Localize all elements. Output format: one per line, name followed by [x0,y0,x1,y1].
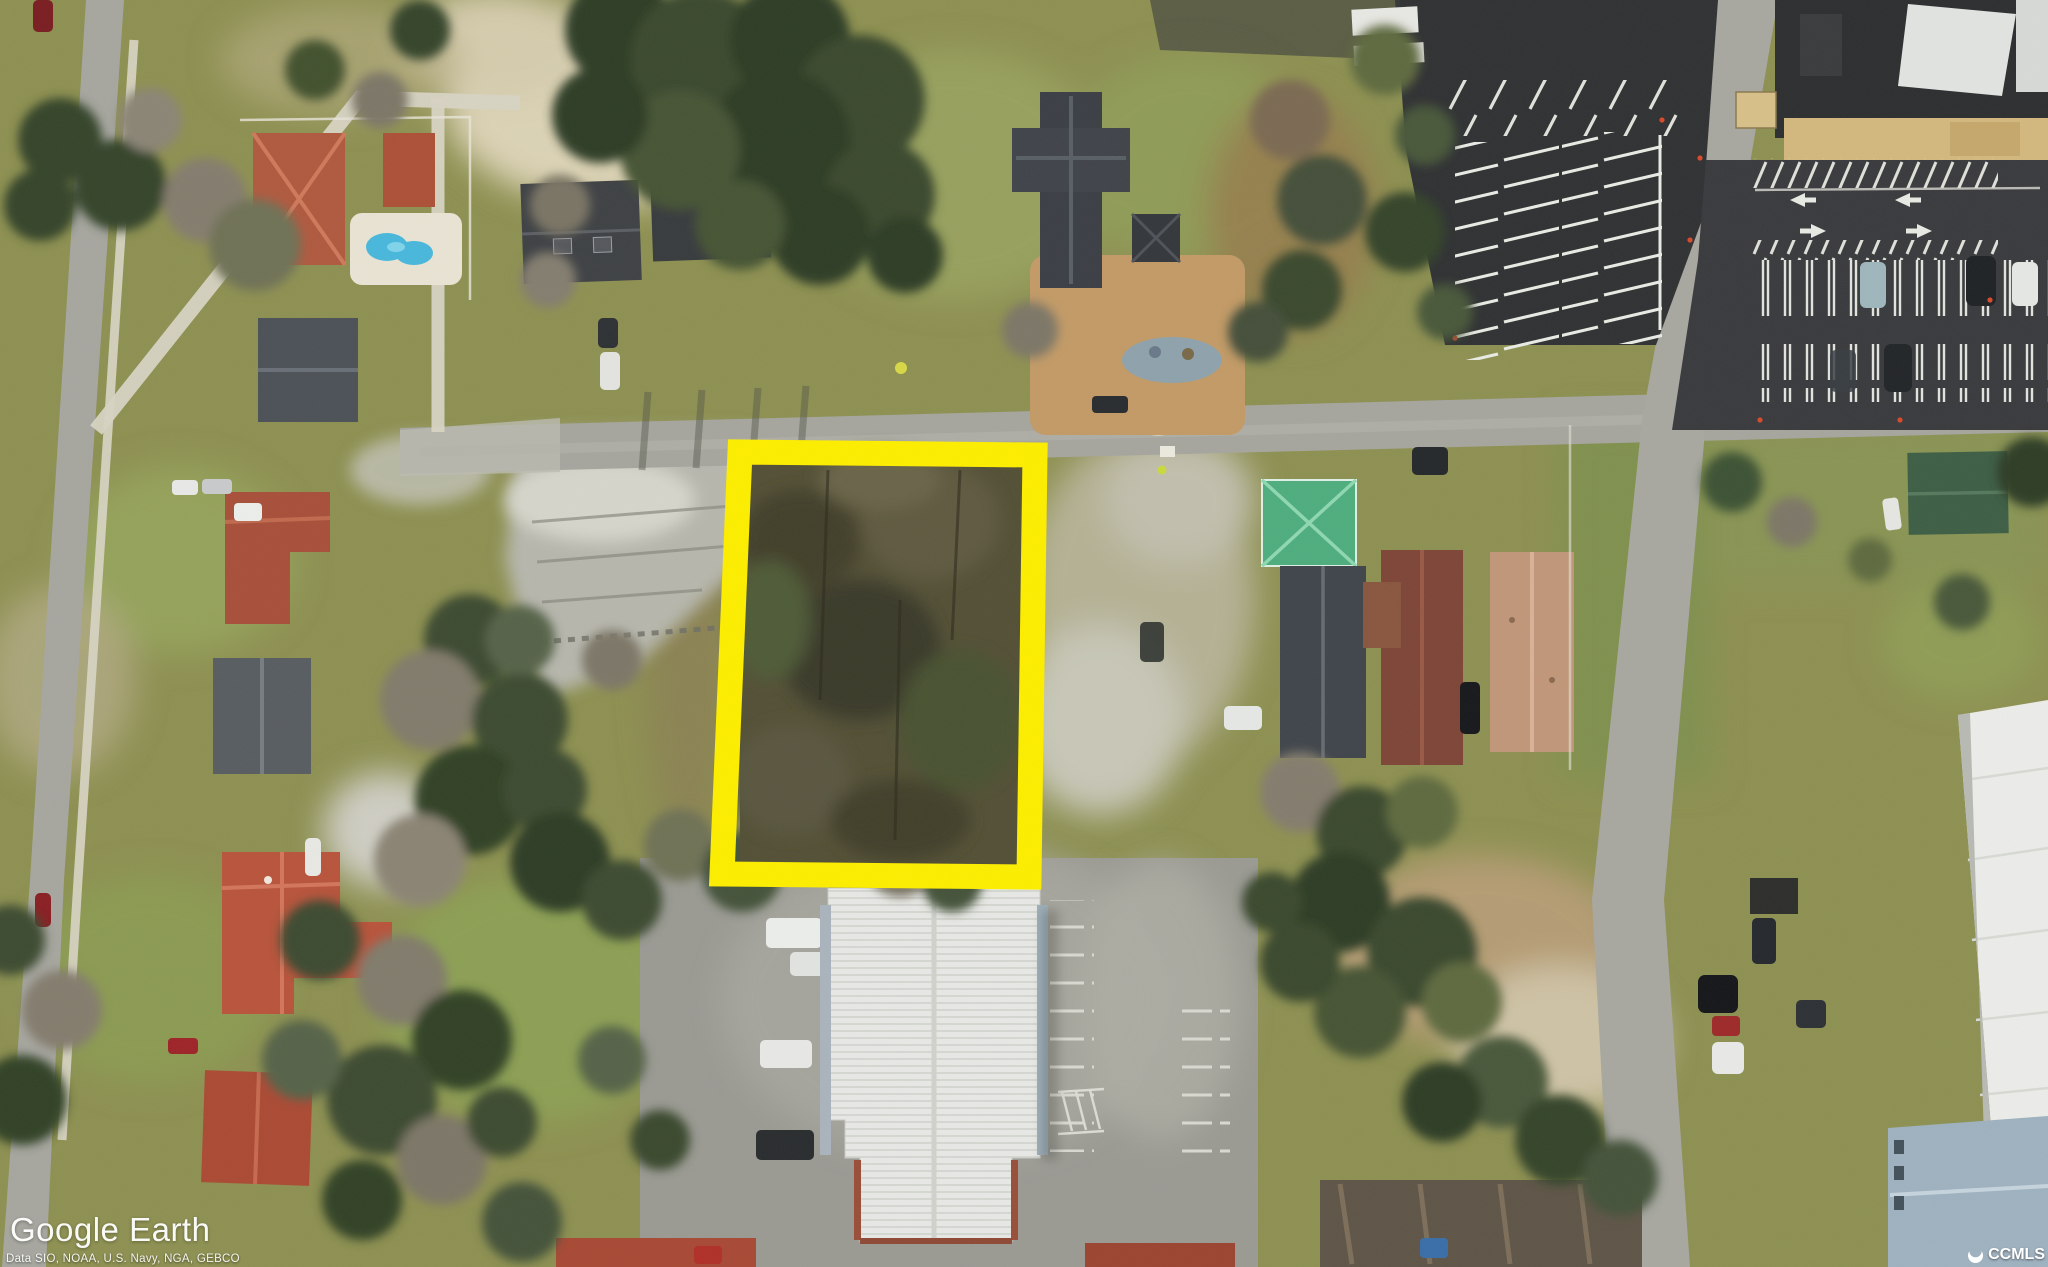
satellite-imagery [0,0,2048,1267]
photo-grain-overlay [0,0,2048,1267]
mls-listing-aerial-photo: Google Earth Data SIO, NOAA, U.S. Navy, … [0,0,2048,1267]
